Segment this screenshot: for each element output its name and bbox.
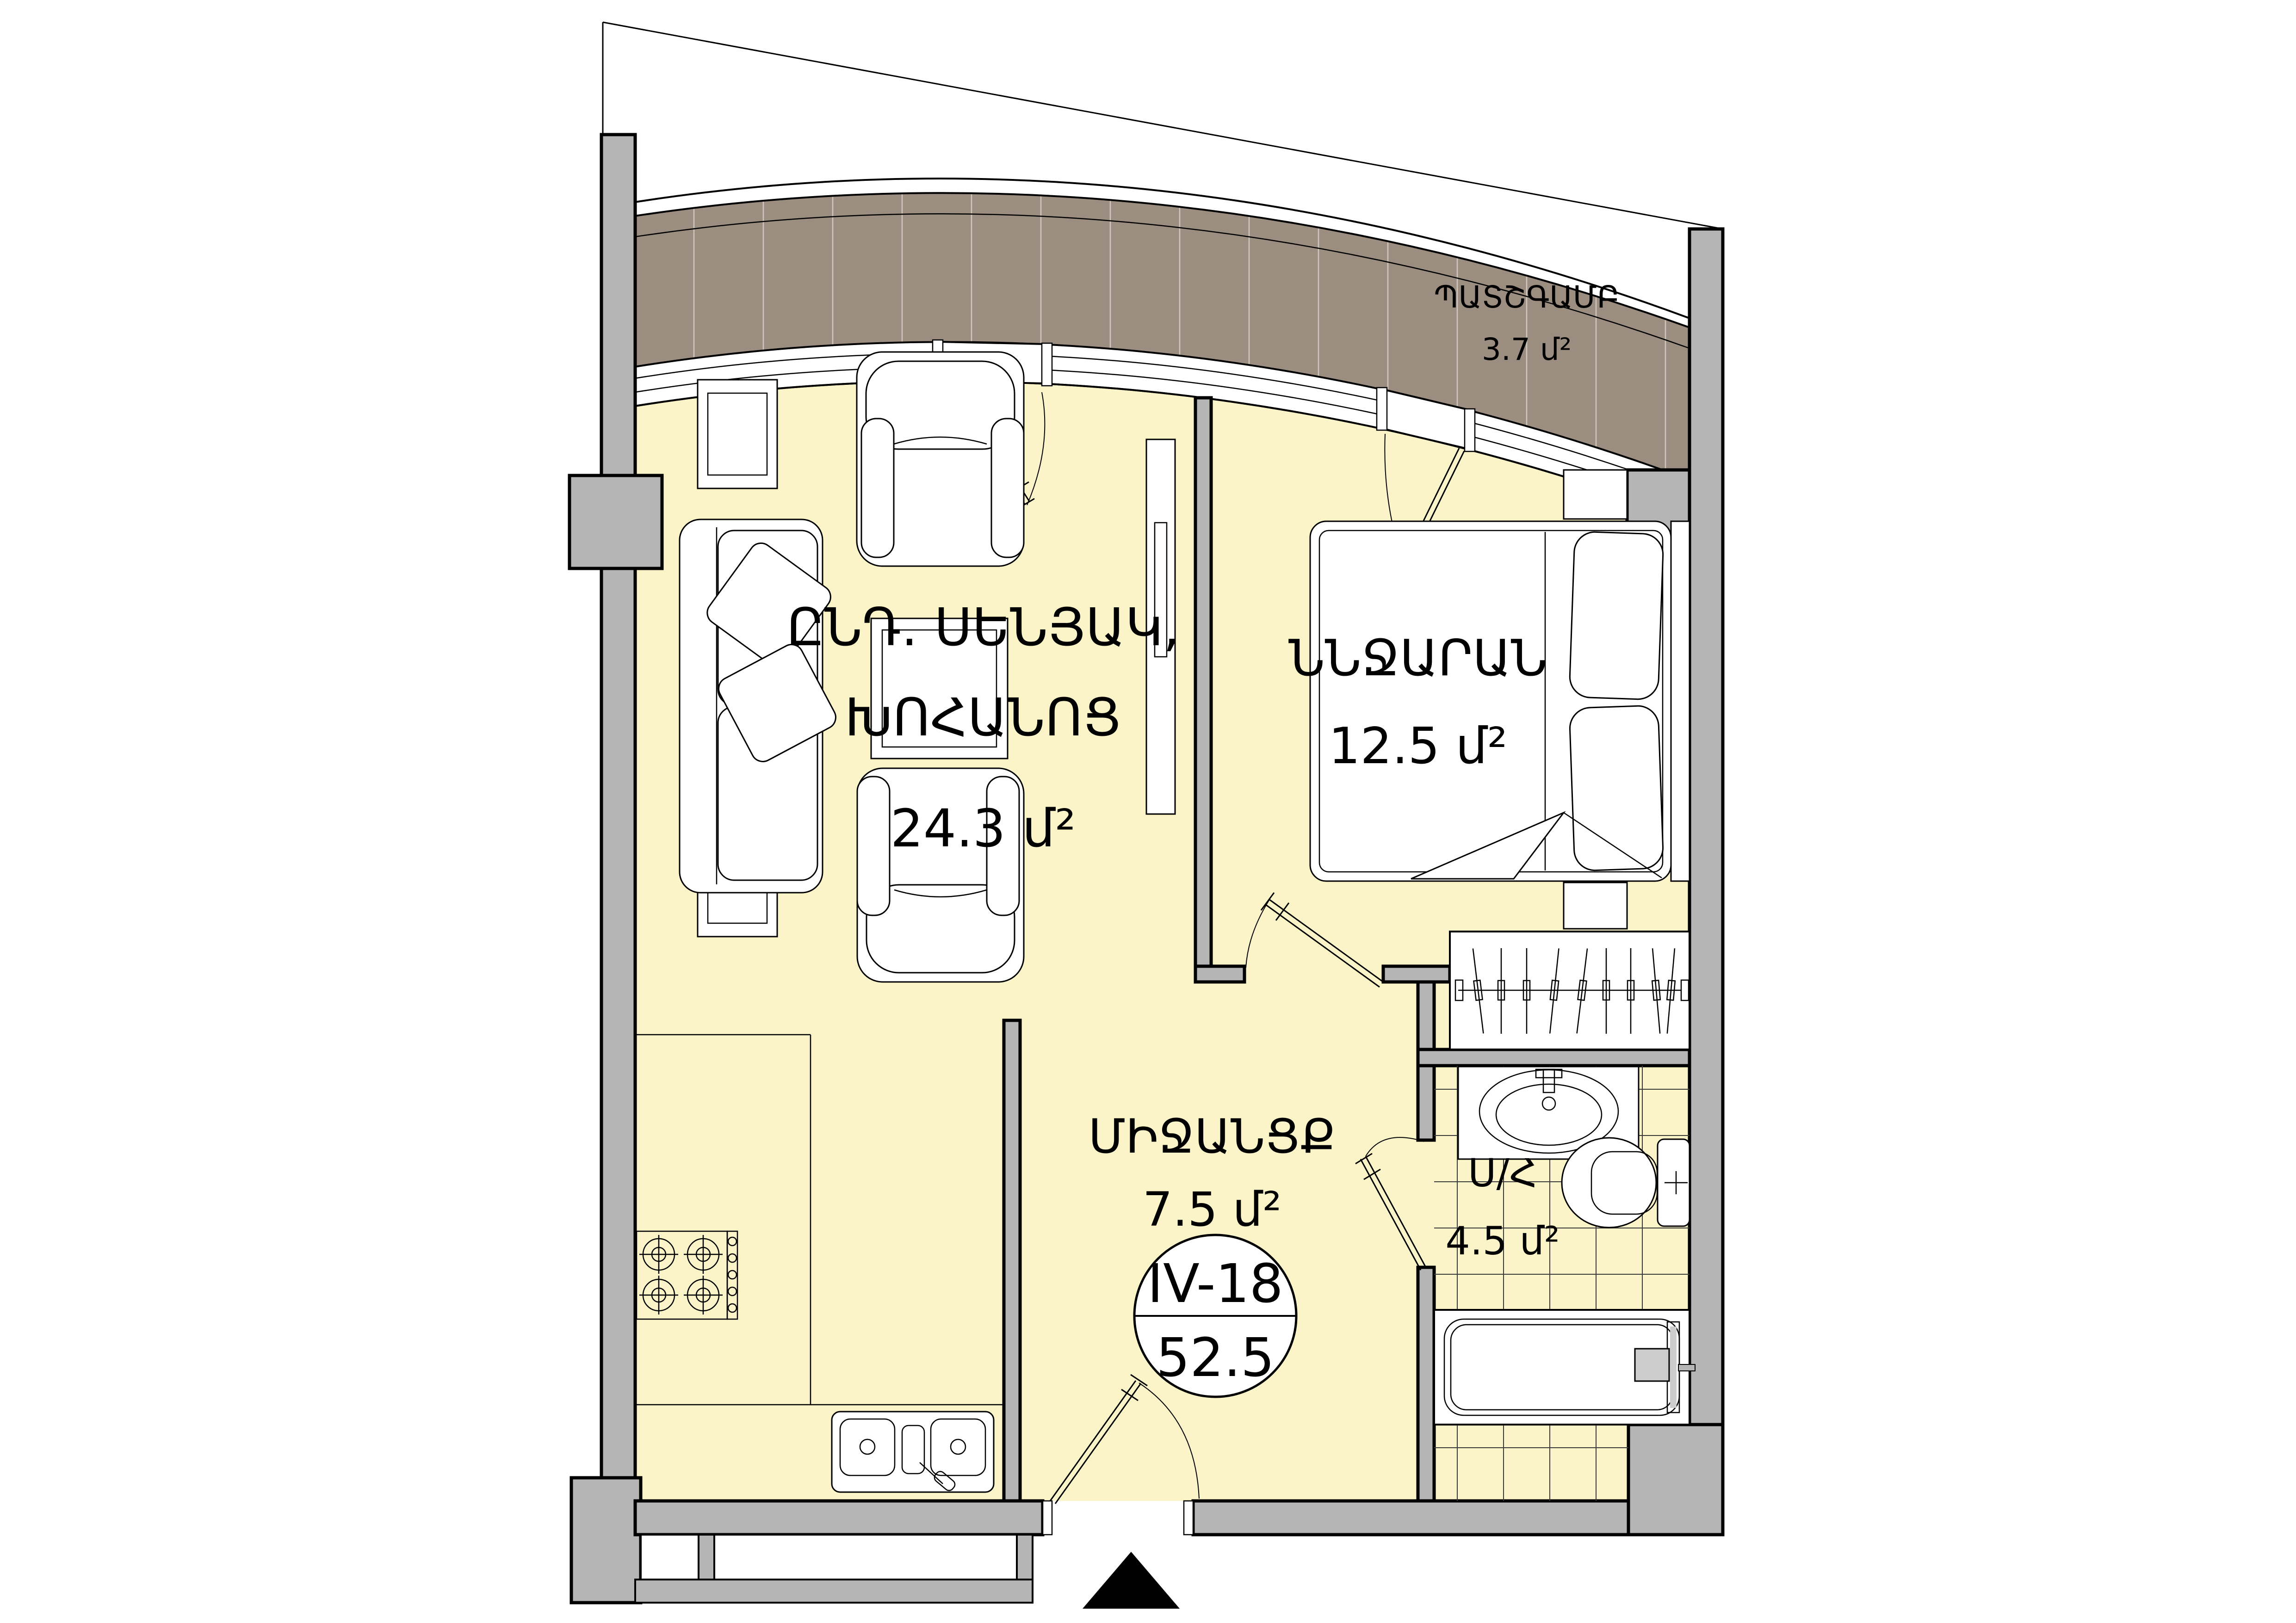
side-table [698, 380, 777, 488]
bed [1310, 521, 1671, 881]
nightstand [1564, 470, 1627, 519]
living-room-label-line1: ԸՆԴ. ՍԵՆՅԱԿ, [786, 598, 1180, 658]
kitchen-sink [832, 1412, 994, 1493]
living-room-area: 24.3 մ² [891, 799, 1076, 859]
bottom-wall-right [1193, 1501, 1628, 1535]
bathtub [1434, 1310, 1695, 1425]
left-wall [601, 135, 635, 1603]
armchair [857, 352, 1024, 566]
bedroom-hall-wall [1383, 966, 1450, 982]
living-room-label-line2: ԽՈՀԱՆՈՑ [845, 688, 1121, 748]
balcony-label: ՊԱՏՇԳԱՄԲ [1434, 279, 1620, 315]
bedroom-area: 12.5 մ² [1329, 717, 1508, 775]
hallway-area: 7.5 մ² [1143, 1182, 1281, 1237]
bottom-right-corner-block [1628, 1425, 1723, 1535]
door-jamb [1377, 388, 1387, 430]
sofa [680, 519, 840, 893]
floor-plan-page: IV-18 52.5 ԸՆԴ. ՍԵՆՅԱԿ, ԽՈՀԱՆՈՑ 24.3 մ² … [0, 0, 2296, 1623]
entrance-marker-icon [1083, 1552, 1180, 1609]
door-jamb [1465, 409, 1475, 451]
floor-plan-drawing: IV-18 52.5 ԸՆԴ. ՍԵՆՅԱԿ, ԽՈՀԱՆՈՑ 24.3 մ² … [0, 0, 2296, 1623]
bathroom-label: Ս/Հ [1468, 1150, 1537, 1196]
door-jamb [1042, 343, 1052, 386]
entry-porch [635, 1535, 1033, 1603]
left-wall-pier [569, 475, 662, 568]
kitchen-hall-wall-stub [1004, 1020, 1020, 1501]
right-wall [1690, 229, 1723, 1425]
pillow [1569, 705, 1664, 871]
unit-code: IV-18 [1147, 1253, 1283, 1315]
unit-badge: IV-18 52.5 [1134, 1235, 1296, 1397]
wardrobe-bathroom-wall [1418, 1049, 1690, 1066]
door-jamb [1043, 1501, 1052, 1535]
living-bedroom-wall-foot [1195, 966, 1244, 982]
pillow [1569, 531, 1664, 700]
bathroom-wall-lower [1418, 1267, 1434, 1501]
bottom-wall-left [635, 1501, 1043, 1535]
living-bedroom-wall [1195, 398, 1211, 966]
wardrobe [1450, 932, 1690, 1049]
toilet [1562, 1138, 1690, 1228]
door-jamb [1184, 1501, 1193, 1535]
nightstand [1564, 882, 1627, 929]
bathroom-area: 4.5 մ² [1445, 1218, 1560, 1264]
balcony-area: 3.7 մ² [1482, 332, 1572, 367]
bottom-left-pier [571, 1478, 641, 1603]
bedroom-label: ՆՆՋԱՐԱՆ [1288, 629, 1547, 687]
hallway-label: ՄԻՋԱՆՑՔ [1088, 1109, 1336, 1164]
headboard [1671, 521, 1690, 881]
unit-total-area: 52.5 [1156, 1327, 1275, 1389]
